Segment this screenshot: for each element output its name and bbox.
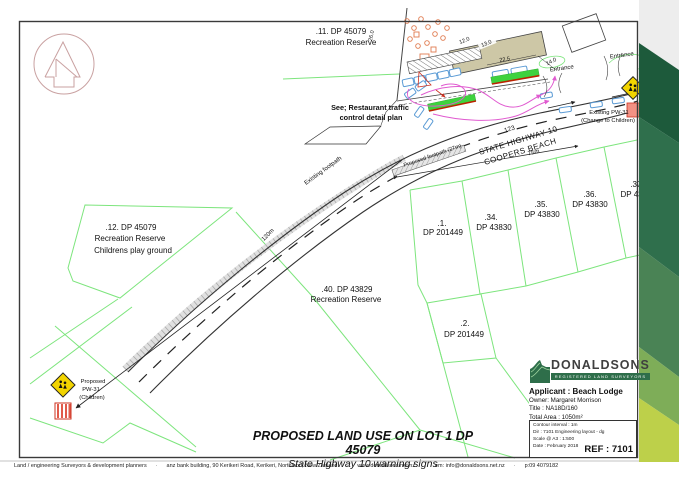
brand-wordmark: DONALDSONS [551,359,650,372]
lot12-number-label: .12. DP 45079 [105,223,157,232]
see-note-line2: control detail plan [340,113,403,122]
lot1-dp-label: DP 201449 [423,228,463,237]
footer-item-4: em: info@donaldsons.net.nz [435,463,505,469]
proposed-sign-post-marker [55,403,71,419]
survey-plan-page: .11. DP 45079 Recreation Reserve See; Re… [0,0,679,480]
brand-subtitle: REGISTERED LAND SURVEYORS [551,373,650,380]
owner-line: Owner: Margaret Morrison [529,397,637,404]
lot40-number-label: .40. DP 43829 [321,285,373,294]
scale-line: Scale @ A3 : 1:500 [533,437,633,444]
drawing-info-box: Contour interval : 1m Dir : 7101 Enginee… [529,420,637,458]
lot2-dp-label: DP 201449 [444,330,484,339]
existing-sign-label-1: Existing PW-31 [589,110,629,116]
footer-item-5: p:09 4079182 [525,463,559,469]
footer-separator: · [156,463,158,469]
lot12-note-label: Childrens play ground [94,246,172,255]
donaldsons-hill-icon [529,359,551,384]
footer-separator: · [514,463,516,469]
footer-separator: · [424,463,426,469]
footer-item-3: www.donaldsons.net.nz [357,463,415,469]
lot2-number-label: .2. [461,319,470,328]
lot11-name-label: Recreation Reserve [306,38,377,47]
contour-line: Contour interval : 1m [533,423,633,430]
donaldsons-logo: DONALDSONS REGISTERED LAND SURVEYORS [529,359,637,384]
footer-item-1: Land / engineering Surveyors & developme… [14,463,147,469]
brand-stripes [639,0,679,462]
proposed-sign-label-1: Proposed [81,379,106,385]
drawing-line: Dir : 7101 Engineering layout - dg [533,430,633,437]
proposed-sign-label-3: (Children) [79,395,105,401]
lot34-dp-label: DP 43830 [476,223,512,232]
lot35-number-label: .35. [534,200,547,209]
see-note-line1: See; Restaurant traffic [331,103,409,112]
lot40-name-label: Recreation Reserve [311,295,382,304]
lot35-dp-label: DP 43830 [524,210,560,219]
lot36-dp-label: DP 43830 [572,200,608,209]
lot34-number-label: .34. [484,213,497,222]
plan-title-main: PROPOSED LAND USE ON LOT 1 DP 45079 [238,429,488,457]
existing-sign-label-2: (Change to Children) [581,118,635,124]
lot1-number-label: .1. [438,219,447,228]
footer-item-2: anz bank building, 90 Kerikeri Road, Ker… [167,463,338,469]
footer: Land / engineering Surveyors & developme… [14,463,674,469]
proposed-sign-label-2: PW-31 [82,387,100,393]
title-ref-line: Title : NA18D/160 [529,405,637,412]
ref-number: REF : 7101 [584,444,633,455]
lot12-name-label: Recreation Reserve [95,234,166,243]
lot36-number-label: .36. [583,190,596,199]
lot11-number-label: .11. DP 45079 [316,27,367,36]
applicant-line: Applicant : Beach Lodge [529,387,637,396]
footer-separator: · [346,463,348,469]
title-block: DONALDSONS REGISTERED LAND SURVEYORS App… [529,359,637,458]
